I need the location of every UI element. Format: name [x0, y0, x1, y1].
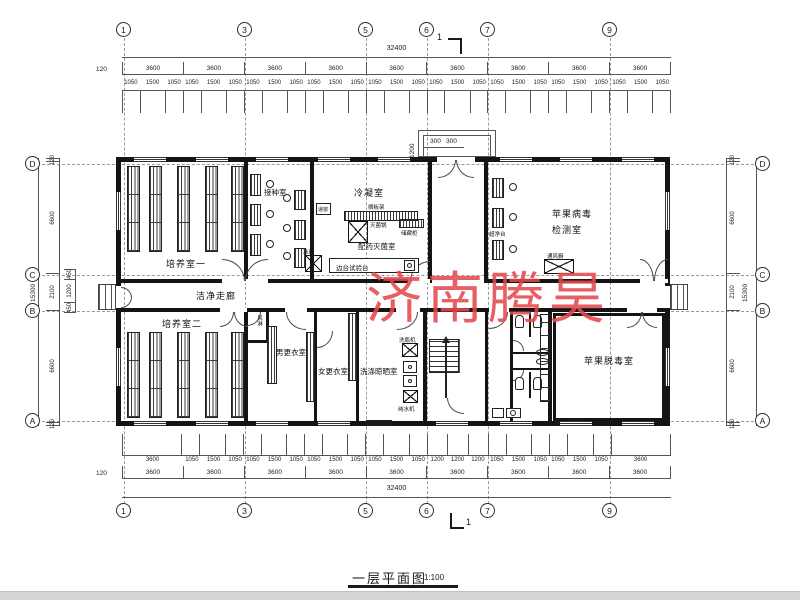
culture-rack: [149, 332, 162, 418]
window: [500, 421, 532, 426]
room-label-virus-line1: 苹果病毒: [552, 207, 592, 220]
clean-bench: [250, 234, 261, 256]
culture-rack: [205, 332, 218, 418]
fridge: [305, 255, 322, 272]
dim-right-overall-line: [756, 158, 757, 426]
dim-top-overall: 32400: [122, 45, 671, 58]
storage-cabinet: [399, 219, 424, 228]
grid-bubble-top-7: 7: [480, 22, 495, 37]
window: [560, 157, 592, 162]
toilet-divider: [529, 372, 531, 398]
toilet: [515, 377, 524, 390]
dim-top-bays: 360036003600360036003600360036003600: [122, 62, 671, 75]
room-label-corridor: 洁净走廊: [196, 289, 236, 302]
dim-left-overall: 15300: [30, 284, 37, 302]
grid-bubble-left-B: B: [25, 303, 40, 318]
sterilizer-pot: [348, 221, 368, 243]
stool: [509, 213, 517, 221]
locker: [348, 313, 357, 381]
window: [436, 421, 468, 426]
window: [196, 421, 228, 426]
dim-right-chain: 120660021006600120: [726, 158, 740, 426]
appliance-dot: [408, 365, 412, 369]
door-threshold: [366, 420, 392, 426]
section-mark-label: 1: [466, 517, 471, 527]
window: [665, 348, 670, 386]
grid-bubble-bottom-9: 9: [602, 503, 617, 518]
grid-bubble-left-A: A: [25, 413, 40, 428]
clean-bench: [250, 174, 261, 196]
culture-rack: [127, 332, 140, 418]
clean-bench: [492, 178, 504, 198]
grid-bubble-bottom-5: 5: [358, 503, 373, 518]
wall: [244, 340, 269, 343]
grid-bubble-bottom-7: 7: [480, 503, 495, 518]
grid-bubble-right-A: A: [755, 413, 770, 428]
stool: [266, 210, 274, 218]
culture-rack: [177, 166, 190, 252]
water-purifier: [403, 390, 418, 403]
dim-right-overall: 15300: [742, 284, 749, 302]
stool: [266, 240, 274, 248]
clean-bench: [250, 204, 261, 226]
room-label-detox: 苹果脱毒室: [584, 354, 634, 367]
grid-bubble-left-D: D: [25, 156, 40, 171]
title-underline: [348, 585, 458, 588]
grid-bubble-bottom-1: 1: [116, 503, 131, 518]
window: [134, 421, 166, 426]
room-label-virus-line2: 检测室: [552, 223, 582, 236]
bottle-washer: [402, 343, 418, 357]
room-label-culture2: 培养室二: [162, 317, 202, 330]
dim-left-overall-line: [38, 158, 39, 426]
window: [622, 421, 654, 426]
clean-bench: [294, 190, 306, 210]
grid-bubble-top-6: 6: [419, 22, 434, 37]
equip-label-water-machine: 纯水机: [398, 405, 415, 413]
staircase-treads: [429, 339, 459, 373]
wash-basin: [492, 408, 504, 418]
window: [318, 421, 350, 426]
window: [500, 157, 532, 162]
section-mark-label: 1: [437, 32, 442, 42]
entrance-steps-west: [98, 284, 116, 310]
grid-bubble-bottom-3: 3: [237, 503, 252, 518]
section-mark-line: [450, 527, 464, 529]
room-label-condense: 冷凝室: [354, 186, 384, 199]
basin-dot: [510, 410, 516, 416]
section-mark-line: [460, 38, 462, 54]
room-label-inoculation: 接种室: [264, 187, 287, 198]
culture-rack: [127, 166, 140, 252]
wall: [244, 157, 248, 283]
equip-label-clean-bench: 超净台: [489, 230, 506, 238]
page-bottom-strip: [0, 591, 800, 600]
drawing-scale: 1:100: [424, 573, 444, 582]
dim-bottom-offset: 120: [96, 470, 107, 477]
window: [256, 157, 288, 162]
clean-bench: [294, 220, 306, 240]
grid-bubble-top-1: 1: [116, 22, 131, 37]
equip-label-cabinet: 储藏柜: [401, 229, 418, 237]
window: [256, 421, 288, 426]
entrance-steps-east: [670, 284, 688, 310]
room-label-women-change: 女更衣室: [318, 366, 348, 377]
dim-bottom-overall: 32400: [122, 485, 671, 498]
window: [378, 157, 410, 162]
door-opening: [665, 286, 670, 308]
grid-bubble-right-D: D: [755, 156, 770, 171]
grid-bubble-right-B: B: [755, 303, 770, 318]
dim-left-chain: 120660021006600120: [46, 158, 60, 426]
dim-bottom-bays: 360036003600360036003600360036003600: [122, 466, 671, 479]
dim-entrance-b: 300: [446, 138, 457, 145]
equip-label-pass-window: 递窗: [318, 206, 328, 213]
window: [665, 192, 670, 230]
staircase-landing-line: [459, 339, 460, 373]
culture-rack: [149, 166, 162, 252]
dim-bottom-witness: 3600105015001050105015001050105015001050…: [122, 434, 671, 455]
locker: [306, 332, 315, 402]
equip-label-shelf: 搁板架: [368, 203, 385, 211]
window: [116, 192, 121, 230]
room-label-men-change: 男更衣室: [276, 347, 306, 358]
stool: [509, 183, 517, 191]
window: [134, 157, 166, 162]
grid-bubble-top-9: 9: [602, 22, 617, 37]
equip-label-fridge: 冰箱: [303, 248, 314, 256]
window: [622, 157, 654, 162]
dim-bottom-fine: 3600105015001050105015001050105015001050…: [122, 457, 671, 466]
grid-bubble-top-3: 3: [237, 22, 252, 37]
stair-arrow-head: [442, 336, 450, 343]
room-label-culture1: 培养室一: [166, 257, 206, 270]
stool: [509, 245, 517, 253]
stair-direction-arrow: [445, 342, 447, 398]
dim-top-witness: 1050150010501050150010501050150010501050…: [122, 91, 671, 113]
stool: [283, 224, 291, 232]
dim-entrance-line: [424, 147, 464, 148]
dim-top-fine: 1050150010501050150010501050150010501050…: [122, 80, 671, 89]
equip-label-side-bench: 边台试验台: [336, 262, 369, 272]
room-label-prep: 配药灭菌室: [358, 241, 396, 252]
equip-label-sterilizer: 灭菌锅: [370, 221, 387, 229]
section-mark-line: [450, 513, 452, 529]
culture-rack: [205, 166, 218, 252]
culture-rack: [231, 166, 244, 252]
room-label-air-shower: 风淋: [255, 315, 263, 326]
grid-bubble-bottom-6: 6: [419, 503, 434, 518]
appliance-dot: [408, 379, 412, 383]
stool: [283, 252, 291, 260]
window: [196, 157, 228, 162]
culture-rack: [177, 332, 190, 418]
window: [560, 421, 592, 426]
dim-entrance-depth: 1200: [409, 144, 416, 158]
dim-left-inner: 4501200450: [64, 269, 76, 313]
grid-bubble-left-C: C: [25, 267, 40, 282]
window: [318, 157, 350, 162]
floor-plan: 32400 3600360036003600360036003600360036…: [0, 0, 800, 600]
equip-label-bottle-washer: 洗瓶机: [399, 336, 416, 344]
dim-bottom-fine-line: [122, 455, 671, 456]
dim-entrance-a: 300: [430, 138, 441, 145]
room-label-washing: 洗涤晾晒室: [360, 366, 398, 377]
dim-top-offset: 120: [96, 66, 107, 73]
window: [116, 348, 121, 386]
grid-bubble-right-C: C: [755, 267, 770, 282]
watermark-text: 济南腾昊: [366, 254, 610, 335]
clean-bench: [492, 208, 504, 228]
grid-bubble-top-5: 5: [358, 22, 373, 37]
culture-rack: [231, 332, 244, 418]
